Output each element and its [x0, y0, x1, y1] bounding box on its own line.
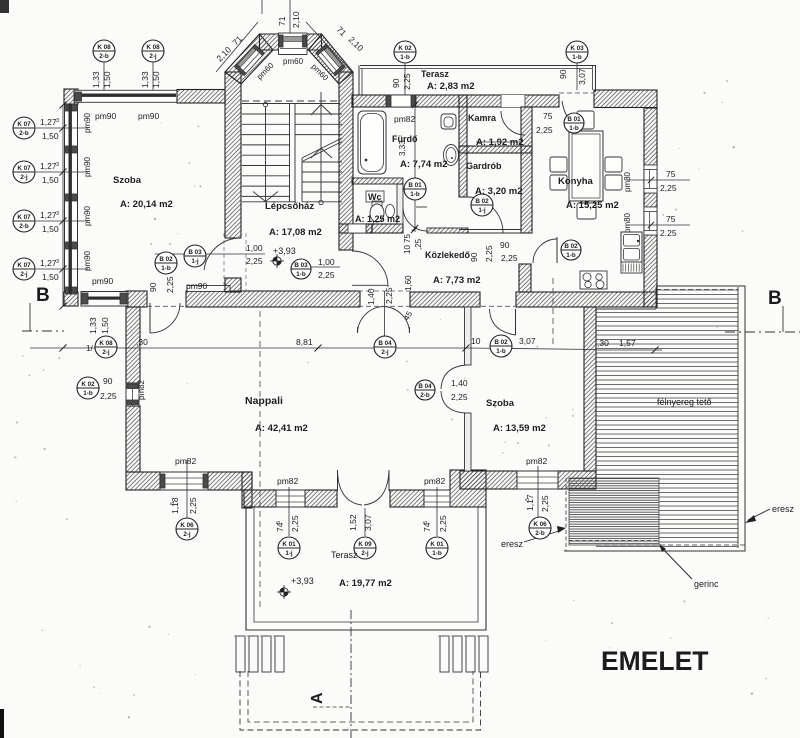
svg-text:B 02: B 02: [564, 243, 578, 250]
svg-text:B: B: [768, 288, 782, 309]
svg-text:2-b: 2-b: [19, 223, 29, 230]
svg-text:+3,93: +3,93: [273, 246, 296, 256]
svg-text:1,50: 1,50: [151, 71, 161, 88]
svg-text:A: 20,14 m2: A: 20,14 m2: [120, 199, 173, 210]
svg-text:3,07: 3,07: [577, 68, 587, 85]
svg-text:K 07: K 07: [17, 121, 31, 128]
svg-text:1,00: 1,00: [246, 243, 263, 253]
svg-text:1,27: 1,27: [40, 117, 57, 127]
svg-text:3: 3: [56, 118, 59, 124]
svg-text:Konyha: Konyha: [558, 176, 594, 187]
svg-text:pm82: pm82: [394, 114, 416, 124]
svg-text:1,40: 1,40: [366, 288, 376, 305]
svg-text:2,25: 2,25: [318, 270, 335, 280]
svg-text:K 06: K 06: [533, 521, 547, 528]
svg-text:pm90: pm90: [138, 111, 160, 121]
svg-text:A: 13,59 m2: A: 13,59 m2: [493, 423, 546, 434]
svg-text:1,50: 1,50: [102, 71, 112, 88]
svg-text:pm90: pm90: [92, 276, 114, 286]
svg-text:1-j: 1-j: [478, 207, 486, 214]
svg-text:Terasz: Terasz: [421, 69, 449, 79]
svg-text:8,81: 8,81: [296, 337, 313, 347]
svg-text:,25: ,25: [414, 238, 423, 250]
svg-text:K 07: K 07: [17, 165, 31, 172]
svg-text:1-b: 1-b: [83, 390, 93, 397]
svg-text:1,00: 1,00: [318, 257, 335, 267]
svg-text:1-j: 1-j: [285, 550, 293, 557]
svg-text:B 02: B 02: [159, 256, 173, 263]
svg-text:EMELET: EMELET: [601, 646, 708, 676]
svg-text:75: 75: [543, 111, 553, 121]
svg-text:75: 75: [666, 214, 676, 224]
svg-text:1/: 1/: [86, 344, 93, 353]
svg-text:pm82: pm82: [175, 456, 197, 466]
svg-text:1,50: 1,50: [100, 317, 110, 334]
svg-text:2-b: 2-b: [535, 530, 545, 537]
svg-text:5: 5: [276, 521, 282, 524]
svg-text:2,25: 2,25: [188, 497, 198, 514]
svg-text:Kamra: Kamra: [468, 113, 497, 123]
svg-text:1,57: 1,57: [619, 338, 636, 348]
svg-text:A: 3,20 m2: A: 3,20 m2: [475, 186, 523, 197]
svg-text:Szoba: Szoba: [486, 398, 515, 409]
svg-text:A: 7,74 m2: A: 7,74 m2: [400, 159, 448, 170]
svg-text:A: 19,77 m2: A: 19,77 m2: [339, 578, 392, 589]
svg-text:3,33: 3,33: [398, 140, 407, 156]
svg-text:A: 1,25 m2: A: 1,25 m2: [355, 214, 400, 224]
svg-text:pm82: pm82: [277, 476, 299, 486]
svg-text:3: 3: [56, 259, 59, 265]
svg-text:,30: ,30: [136, 337, 148, 347]
svg-text:2-b: 2-b: [19, 130, 29, 137]
svg-text:90: 90: [558, 69, 568, 79]
svg-text:1-b: 1-b: [296, 271, 306, 278]
svg-text:A: 2,83 m2: A: 2,83 m2: [427, 81, 475, 92]
svg-text:1,33: 1,33: [88, 317, 98, 334]
svg-text:2,25: 2,25: [402, 73, 412, 90]
svg-text:5: 5: [170, 502, 176, 505]
svg-text:B 04: B 04: [378, 340, 392, 347]
svg-text:A: 17,08 m2: A: 17,08 m2: [269, 227, 322, 238]
svg-text:2,25: 2,25: [165, 276, 175, 293]
svg-text:1,52: 1,52: [348, 514, 358, 531]
svg-text:1,27: 1,27: [40, 258, 57, 268]
svg-text:90: 90: [148, 282, 158, 292]
svg-text:2,25: 2,25: [246, 256, 263, 266]
svg-text:2,25: 2,25: [384, 287, 394, 304]
svg-text:K 06: K 06: [180, 522, 194, 529]
svg-text:2-j: 2-j: [361, 550, 369, 557]
svg-text:90: 90: [469, 252, 479, 262]
svg-text:Szoba: Szoba: [113, 175, 142, 186]
svg-text:2,25: 2,25: [451, 392, 468, 402]
svg-text:1,27: 1,27: [40, 210, 57, 220]
svg-text:Lépcsőház: Lépcsőház: [265, 201, 314, 212]
svg-text:75: 75: [403, 234, 412, 243]
svg-text:Wc: Wc: [368, 192, 382, 202]
svg-text:pm82: pm82: [137, 379, 146, 400]
svg-text:2,25: 2,25: [501, 253, 518, 263]
svg-text:Közlekedő: Közlekedő: [425, 250, 471, 260]
svg-text:K 07: K 07: [17, 262, 31, 269]
svg-text:2,25: 2,25: [438, 515, 448, 532]
svg-text:2-j: 2-j: [381, 349, 389, 356]
svg-text:1,50: 1,50: [42, 131, 59, 141]
svg-text:pm90: pm90: [83, 205, 92, 226]
svg-text:A: A: [309, 692, 326, 704]
svg-text:pm80: pm80: [623, 212, 632, 233]
svg-text:2-b: 2-b: [420, 392, 430, 399]
svg-text:K 02: K 02: [398, 45, 412, 52]
svg-text:K 01: K 01: [282, 541, 296, 548]
svg-text:2,25: 2,25: [290, 515, 300, 532]
svg-text:pm60: pm60: [283, 57, 304, 66]
svg-text:B 04: B 04: [418, 383, 432, 390]
svg-text:B 01: B 01: [567, 116, 581, 123]
svg-text:A: 1,92 m2: A: 1,92 m2: [476, 137, 524, 148]
svg-text:90: 90: [391, 78, 401, 88]
svg-text:90: 90: [500, 240, 510, 250]
svg-text:1-b: 1-b: [496, 348, 506, 355]
svg-text:2-j: 2-j: [183, 531, 191, 538]
svg-text:1,33: 1,33: [140, 71, 150, 88]
svg-text:1-b: 1-b: [566, 252, 576, 259]
svg-text:1,60: 1,60: [404, 275, 413, 291]
svg-text:2-b: 2-b: [99, 53, 109, 60]
svg-text:B 01: B 01: [408, 182, 422, 189]
svg-text:pm90: pm90: [83, 112, 92, 133]
svg-text:3: 3: [56, 211, 59, 217]
svg-text:pm82: pm82: [424, 476, 446, 486]
svg-text:1-b: 1-b: [400, 54, 410, 61]
svg-text:félnyereg tető: félnyereg tető: [657, 397, 712, 407]
svg-text:eresz: eresz: [772, 504, 795, 514]
svg-text:1-b: 1-b: [569, 125, 579, 132]
svg-text:K 08: K 08: [97, 44, 111, 51]
svg-text:2-j: 2-j: [20, 271, 28, 278]
svg-text:B 02: B 02: [475, 198, 489, 205]
svg-text:1,33: 1,33: [91, 71, 101, 88]
svg-text:K 07: K 07: [17, 214, 31, 221]
svg-text:Terasz: Terasz: [331, 550, 358, 560]
svg-text:1,17: 1,17: [525, 494, 535, 511]
svg-text:pm82: pm82: [526, 456, 548, 466]
svg-text:B 03: B 03: [188, 249, 202, 256]
svg-text:10: 10: [471, 336, 481, 346]
svg-text:pm90: pm90: [186, 281, 208, 291]
svg-text:3: 3: [56, 162, 59, 168]
svg-text:2,25: 2,25: [540, 495, 550, 512]
svg-text:K 02: K 02: [81, 381, 95, 388]
svg-text:2,25: 2,25: [536, 125, 553, 135]
svg-text:K 01: K 01: [430, 541, 444, 548]
svg-text:K 08: K 08: [146, 44, 160, 51]
svg-text:1,40: 1,40: [451, 378, 468, 388]
svg-text:K 09: K 09: [358, 541, 372, 548]
svg-text:eresz: eresz: [501, 539, 524, 549]
svg-text:1,50: 1,50: [42, 224, 59, 234]
svg-text:A: 7,73 m2: A: 7,73 m2: [433, 275, 481, 286]
svg-text:+3,93: +3,93: [291, 576, 314, 586]
svg-text:2,25: 2,25: [100, 391, 117, 401]
svg-text:B 03: B 03: [294, 262, 308, 269]
svg-text:10: 10: [403, 245, 412, 254]
svg-text:2-j: 2-j: [102, 349, 110, 356]
svg-text:Nappali: Nappali: [245, 395, 283, 407]
svg-text:2-j: 2-j: [20, 174, 28, 181]
svg-text:Gardrób: Gardrób: [466, 161, 502, 171]
svg-text:1,50: 1,50: [42, 175, 59, 185]
svg-text:A: 15,25 m2: A: 15,25 m2: [566, 200, 619, 211]
svg-text:1-b: 1-b: [432, 550, 442, 557]
svg-text:2.25: 2.25: [660, 228, 677, 238]
svg-text:K 03: K 03: [570, 45, 584, 52]
svg-text:1-b: 1-b: [410, 191, 420, 198]
svg-text:pm90: pm90: [83, 156, 92, 177]
svg-text:5: 5: [525, 498, 531, 501]
svg-text:3,07: 3,07: [363, 514, 373, 531]
svg-text:90: 90: [103, 376, 113, 386]
svg-text:A: 42,41 m2: A: 42,41 m2: [255, 423, 308, 434]
svg-text:1-j: 1-j: [191, 258, 199, 265]
svg-text:1-b: 1-b: [161, 265, 171, 272]
svg-text:75: 75: [666, 169, 676, 179]
svg-text:K 08: K 08: [99, 340, 113, 347]
svg-text:pm80: pm80: [623, 171, 632, 192]
svg-text:,30: ,30: [597, 338, 609, 348]
svg-text:1,50: 1,50: [42, 272, 59, 282]
svg-text:1-b: 1-b: [572, 54, 582, 61]
svg-text:2,10: 2,10: [291, 11, 301, 28]
svg-text:1,27: 1,27: [40, 161, 57, 171]
svg-text:pm90: pm90: [83, 250, 92, 271]
svg-text:71: 71: [277, 16, 287, 26]
svg-text:5: 5: [423, 521, 429, 524]
svg-text:B 02: B 02: [494, 339, 508, 346]
svg-text:pm90: pm90: [95, 111, 117, 121]
svg-text:2-j: 2-j: [149, 53, 157, 60]
svg-text:B: B: [36, 285, 50, 306]
svg-text:2,25: 2,25: [484, 245, 494, 262]
svg-text:gerinc: gerinc: [694, 579, 719, 589]
svg-text:3,07: 3,07: [519, 336, 536, 346]
svg-text:2,25: 2,25: [660, 183, 677, 193]
